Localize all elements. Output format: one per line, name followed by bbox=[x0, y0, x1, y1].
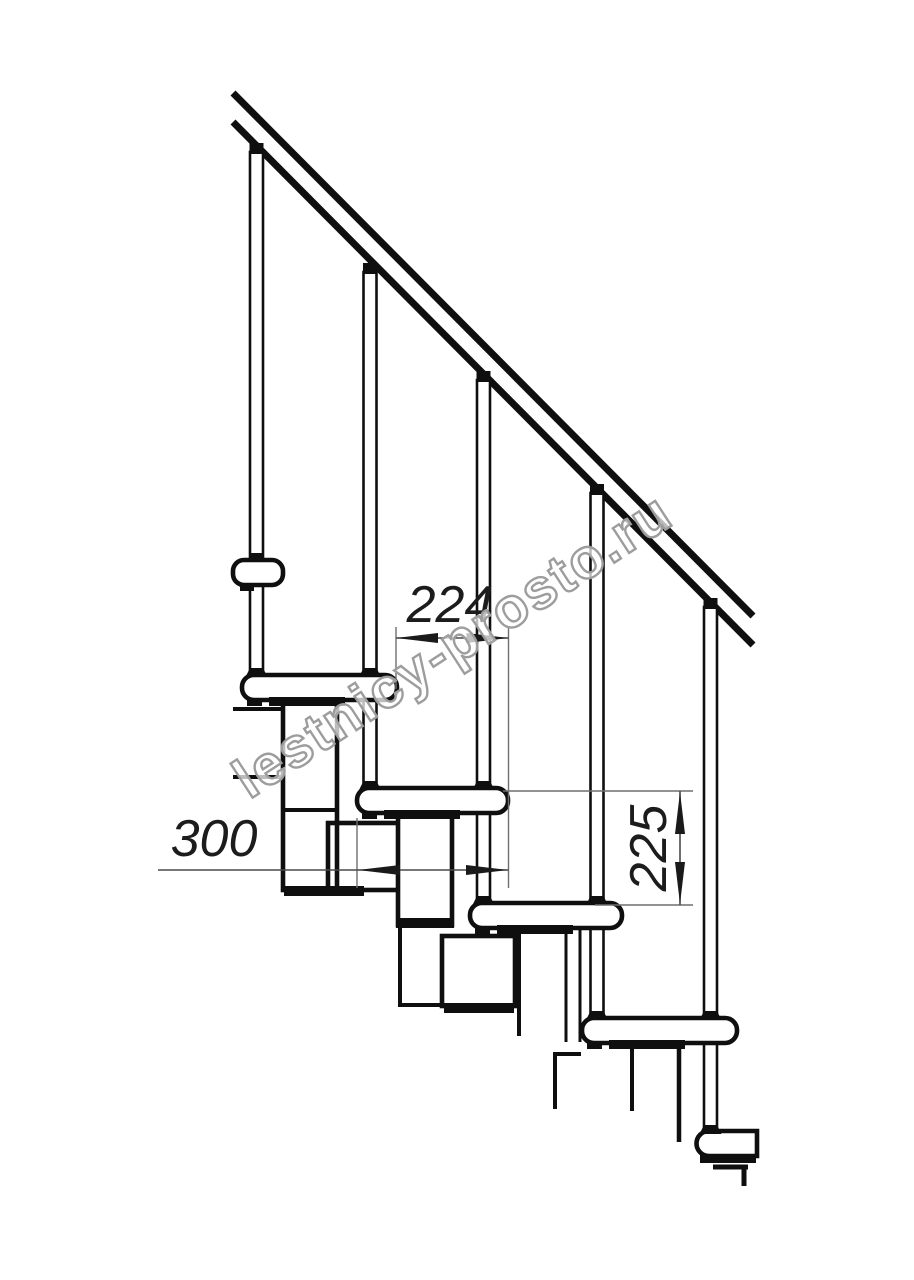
spine-module-2-base bbox=[444, 1003, 514, 1013]
tread-2 bbox=[357, 788, 508, 813]
baluster-rail-cap bbox=[590, 484, 604, 495]
tread-support-bracket bbox=[587, 1041, 602, 1049]
tread-5-partial bbox=[696, 1131, 757, 1156]
drawing-svg: 224 300 225 lestnicy-prosto.ru bbox=[0, 0, 914, 1280]
baluster-rail-cap bbox=[704, 598, 718, 609]
baluster-rail-cap bbox=[363, 263, 377, 274]
dimension-arrow-left bbox=[358, 865, 400, 875]
tread-support-bracket bbox=[497, 925, 573, 934]
spine-module-1-base bbox=[284, 886, 364, 896]
watermark-text: lestnicy-prosto.ru bbox=[222, 480, 683, 810]
spine-neck-2-base bbox=[396, 918, 454, 928]
tread-support-bracket bbox=[362, 811, 377, 819]
baluster-post bbox=[704, 607, 717, 1132]
tread-support-bracket bbox=[700, 1154, 756, 1163]
dimension-label-depth: 300 bbox=[171, 810, 258, 868]
tread-support-bracket bbox=[609, 1040, 685, 1049]
baluster-post bbox=[250, 152, 263, 675]
dimension-label-rise: 225 bbox=[620, 804, 678, 893]
spine-module-2 bbox=[442, 936, 515, 1006]
baluster-collar bbox=[249, 553, 265, 562]
baluster-rail-cap bbox=[250, 143, 264, 154]
baluster-rail-cap bbox=[477, 371, 491, 382]
handrail bbox=[233, 93, 753, 645]
tread-edge-on bbox=[233, 560, 283, 585]
staircase-technical-drawing: 224 300 225 lestnicy-prosto.ru bbox=[0, 0, 914, 1280]
tread-edge-on-tab bbox=[240, 585, 254, 591]
handrail-lower-line bbox=[233, 122, 753, 645]
tread-support-bracket bbox=[247, 698, 262, 706]
tread-support-bracket bbox=[384, 810, 460, 819]
baluster-1 bbox=[250, 143, 264, 675]
tread-4 bbox=[582, 1018, 737, 1043]
tread-support-bracket bbox=[475, 926, 490, 934]
baluster-5 bbox=[704, 598, 718, 1132]
tread-3 bbox=[470, 903, 622, 928]
